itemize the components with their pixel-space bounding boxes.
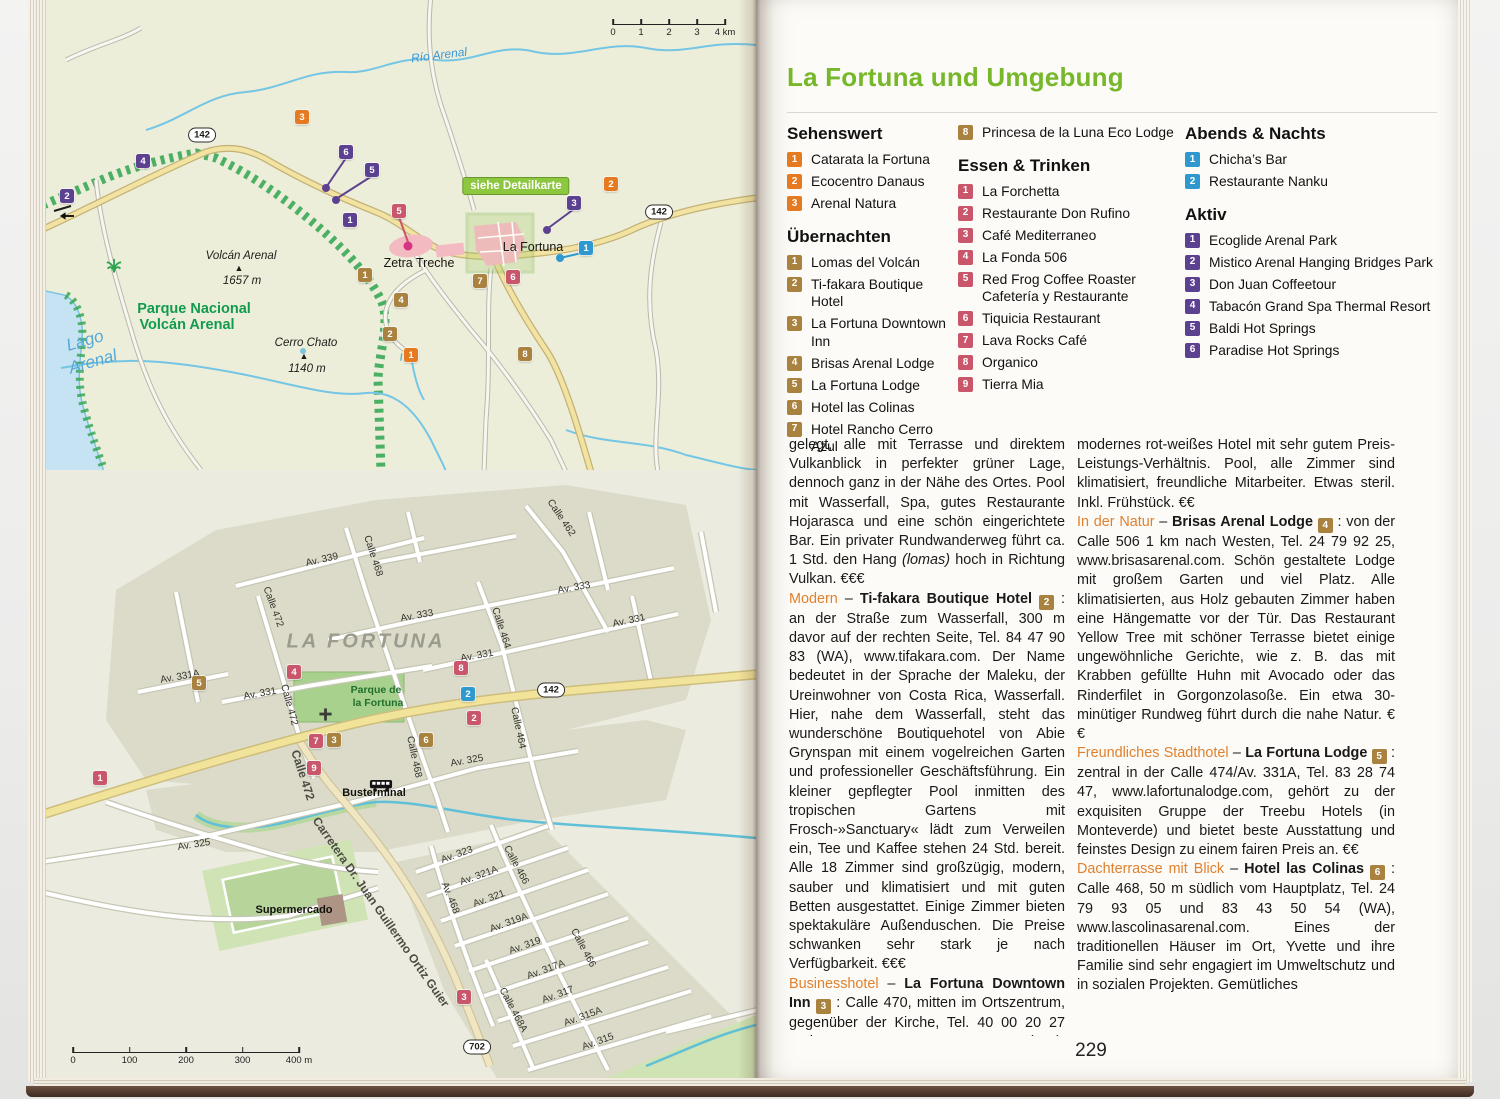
legend-item-label: Restaurante Don Rufino <box>982 205 1185 223</box>
map-label: Río Arenal <box>410 45 468 66</box>
map-label: ▲ <box>235 263 244 273</box>
legend-number-badge: 3 <box>787 196 802 211</box>
legend-item-label: Café Mediterraneo <box>982 227 1185 245</box>
map-label: Av. 323 <box>440 844 475 866</box>
legend-number-badge: 4 <box>1185 299 1200 314</box>
right-page-text: La Fortuna und Umgebung Sehenswert1Catar… <box>756 0 1458 1078</box>
legend-item: 7Lava Rocks Café <box>958 332 1185 350</box>
legend-item-label: Restaurante Nanku <box>1209 173 1447 191</box>
map-label: Calle 464 <box>508 706 528 750</box>
book-cover-edge <box>26 1086 1474 1097</box>
map-label: la Fortuna <box>353 697 404 709</box>
map-marker-lodging-6: 6 <box>419 733 433 747</box>
map-marker-food-2: 2 <box>467 711 481 725</box>
scale-tick-label: 100 <box>122 1055 138 1066</box>
legend-item-label: Mistico Arenal Hanging Bridges Park <box>1209 254 1447 272</box>
legend-item-label: Ecoglide Arenal Park <box>1209 232 1447 250</box>
map-label: Calle 464 <box>489 606 513 650</box>
legend-item-label: Hotel las Colinas <box>811 399 958 417</box>
map-label: Av. 319A <box>488 911 529 935</box>
map-label: Av. 321A <box>458 864 499 888</box>
map-label: Zetra Treche <box>384 256 455 270</box>
legend-item-label: Don Juan Coffeetour <box>1209 276 1447 294</box>
map-marker-night-1: 1 <box>579 241 593 255</box>
map-label: Parque Nacional <box>137 301 251 317</box>
map-label: 1657 m <box>223 275 261 287</box>
map-label: Av. 319 <box>508 935 543 957</box>
legend-item: 5Red Frog Coffee Roaster Cafetería y Res… <box>958 271 1185 306</box>
legend-column-1: Sehenswert1Catarata la Fortuna2Ecocentro… <box>787 120 958 460</box>
legend-item: 2Restaurante Nanku <box>1185 173 1447 191</box>
inline-number-badge: 5 <box>1372 749 1387 764</box>
legend-item: 9Tierra Mia <box>958 376 1185 394</box>
map-marker-lodging-1: 1 <box>358 268 372 282</box>
map-marker-sight-1: 1 <box>404 348 418 362</box>
map-label: Volcán Arenal <box>139 317 234 333</box>
title-rule <box>787 112 1437 113</box>
legend-section-title: Sehenswert <box>787 124 958 144</box>
scale-tick-label: 0 <box>70 1055 75 1066</box>
map-label: Parque de <box>351 684 402 696</box>
book-spread-photo: Río Arenal142142siehe DetailkarteLa Fort… <box>0 0 1500 1099</box>
map-label: Cerro Chato <box>275 337 338 349</box>
legend-number-badge: 5 <box>1185 321 1200 336</box>
scale-tick-label: 2 <box>666 27 671 38</box>
map-marker-active-3: 3 <box>567 196 581 210</box>
legend-item: 4Tabacón Grand Spa Thermal Resort <box>1185 298 1447 316</box>
legend-number-badge: 2 <box>958 206 973 221</box>
legend-item: 1La Forchetta <box>958 183 1185 201</box>
map-label: Av. 315 <box>581 1031 616 1053</box>
map-label: Calle 466 <box>568 927 598 969</box>
map-label: Av. 321 <box>472 888 507 910</box>
page-stack-right-edge <box>1458 0 1472 1082</box>
map-label: Av. 333 <box>557 580 591 597</box>
legend-item: 4La Fonda 506 <box>958 249 1185 267</box>
article-column-1: gelegt, alle mit Terrasse und direktem V… <box>789 436 1065 1036</box>
legend-item-label: Arenal Natura <box>811 195 958 213</box>
map-marker-lodging-8: 8 <box>518 347 532 361</box>
map-marker-active-1: 1 <box>343 213 357 227</box>
map-label: Av. 339 <box>305 551 340 569</box>
map-label: 142 <box>188 128 216 143</box>
legend-item-label: Ti-fakara Boutique Hotel <box>811 276 958 311</box>
map-label: Av. 325 <box>450 753 484 770</box>
legend-section-title: Übernachten <box>787 227 958 247</box>
legend-number-badge: 1 <box>1185 152 1200 167</box>
legend-item: 5La Fortuna Lodge <box>787 377 958 395</box>
map-label: ▲ <box>300 351 309 361</box>
map-label: Calle 472 <box>278 683 300 727</box>
scale-tick-label: 0 <box>610 27 615 38</box>
legend-number-badge: 9 <box>958 377 973 392</box>
map-label: Av. 333 <box>400 608 434 625</box>
inline-number-badge: 3 <box>816 999 831 1014</box>
paragraph: Freundliches Stadthotel – La Fortuna Lod… <box>1077 744 1395 860</box>
legend-item-label: La Fortuna Lodge <box>811 377 958 395</box>
map-annotations: Río Arenal142142siehe DetailkarteLa Fort… <box>46 0 756 1078</box>
legend-item: 6Paradise Hot Springs <box>1185 342 1447 360</box>
legend-number-badge: 1 <box>958 184 973 199</box>
legend-item: 4Brisas Arenal Lodge <box>787 355 958 373</box>
map-label: Calle 468A <box>497 986 530 1034</box>
legend-item: 3Arenal Natura <box>787 195 958 213</box>
map-label: 142 <box>537 683 565 698</box>
map-label: Av. 325 <box>177 837 211 853</box>
legend-item: 2Restaurante Don Rufino <box>958 205 1185 223</box>
map-marker-food-5: 5 <box>392 204 406 218</box>
legend-number-badge: 1 <box>787 255 802 270</box>
map-label: Av. 317A <box>525 958 566 982</box>
overview-map-scalebar: 01234 km <box>613 16 725 42</box>
map-label: siehe Detailkarte <box>462 177 569 195</box>
legend-item-label: Chicha’s Bar <box>1209 151 1447 169</box>
legend-number-badge: 2 <box>1185 255 1200 270</box>
legend-item-label: La Fortuna Downtown Inn <box>811 315 958 350</box>
legend-number-badge: 2 <box>787 277 802 292</box>
legend-item: 8Princesa de la Luna Eco Lodge <box>958 124 1185 142</box>
map-marker-lodging-2: 2 <box>383 327 397 341</box>
map-label: 142 <box>645 205 673 220</box>
map-marker-lodging-4: 4 <box>394 293 408 307</box>
map-label: Calle 462 <box>545 497 578 538</box>
map-marker-lodging-5: 5 <box>192 676 206 690</box>
legend-item-label: Tiquicia Restaurant <box>982 310 1185 328</box>
legend-number-badge: 1 <box>1185 233 1200 248</box>
legend-item-label: Red Frog Coffee Roaster Cafetería y Rest… <box>982 271 1185 306</box>
legend-number-badge: 4 <box>958 250 973 265</box>
inline-number-badge: 6 <box>1370 865 1385 880</box>
scale-tick-label: 200 <box>178 1055 194 1066</box>
legend-item: 1Lomas del Volcán <box>787 254 958 272</box>
legend-item-label: Organico <box>982 354 1185 372</box>
paragraph: Dachterrasse mit Blick – Hotel las Colin… <box>1077 860 1395 995</box>
legend-item: 2Ecocentro Danaus <box>787 173 958 191</box>
map-marker-active-6: 6 <box>339 145 353 159</box>
map-marker-night-2: 2 <box>461 687 475 701</box>
legend-number-badge: 1 <box>787 152 802 167</box>
legend-item: 3Café Mediterraneo <box>958 227 1185 245</box>
inline-number-badge: 4 <box>1318 518 1333 533</box>
scale-tick-label: 300 <box>235 1055 251 1066</box>
legend-item: 8Organico <box>958 354 1185 372</box>
map-label: Supermercado <box>255 904 332 916</box>
map-label: LA FORTUNA <box>287 631 446 654</box>
legend-number-badge: 7 <box>787 422 802 437</box>
legend-section-title: Essen & Trinken <box>958 156 1185 176</box>
scale-tick-label: 1 <box>638 27 643 38</box>
paragraph: gelegt, alle mit Terrasse und direktem V… <box>789 436 1065 590</box>
map-marker-food-6: 6 <box>506 270 520 284</box>
legend-item: 1Ecoglide Arenal Park <box>1185 232 1447 250</box>
map-label: Calle 468 <box>361 534 385 578</box>
map-label: Av. 315A <box>562 1005 603 1029</box>
legend-number-badge: 4 <box>787 356 802 371</box>
legend-item-label: La Forchetta <box>982 183 1185 201</box>
left-page-maps: Río Arenal142142siehe DetailkarteLa Fort… <box>46 0 756 1078</box>
paragraph: Modern – Ti-fakara Boutique Hotel 2 : an… <box>789 590 1065 975</box>
legend-item-label: Tabacón Grand Spa Thermal Resort <box>1209 298 1447 316</box>
paragraph: In der Natur – Brisas Arenal Lodge 4 : v… <box>1077 513 1395 744</box>
legend-number-badge: 7 <box>958 333 973 348</box>
map-marker-food-3: 3 <box>457 990 471 1004</box>
map-marker-active-2: 2 <box>60 189 74 203</box>
legend: Sehenswert1Catarata la Fortuna2Ecocentro… <box>787 120 1447 460</box>
map-label: 1140 m <box>288 363 326 375</box>
legend-number-badge: 8 <box>958 355 973 370</box>
map-label: Av. 331 <box>243 686 277 703</box>
page-number: 229 <box>787 1040 1395 1062</box>
legend-column-2: 8Princesa de la Luna Eco LodgeEssen & Tr… <box>958 120 1185 460</box>
paragraph: modernes rot-weißes Hotel mit sehr gutem… <box>1077 436 1395 513</box>
map-marker-lodging-7: 7 <box>473 274 487 288</box>
legend-item-label: Tierra Mia <box>982 376 1185 394</box>
legend-number-badge: 5 <box>958 272 973 287</box>
legend-item: 3La Fortuna Downtown Inn <box>787 315 958 350</box>
scale-tick-label: 400 m <box>286 1055 312 1066</box>
map-marker-food-7: 7 <box>309 734 323 748</box>
article-column-2: modernes rot-weißes Hotel mit sehr gutem… <box>1077 436 1395 1036</box>
legend-item: 1Chicha’s Bar <box>1185 151 1447 169</box>
map-marker-food-8: 8 <box>454 661 468 675</box>
legend-section-title: Aktiv <box>1185 205 1447 225</box>
map-label: La Fortuna <box>503 240 563 254</box>
legend-item-label: Paradise Hot Springs <box>1209 342 1447 360</box>
legend-item-label: La Fonda 506 <box>982 249 1185 267</box>
map-label: 702 <box>463 1040 491 1055</box>
legend-item: 2Mistico Arenal Hanging Bridges Park <box>1185 254 1447 272</box>
scale-tick-label: 3 <box>694 27 699 38</box>
legend-number-badge: 6 <box>958 311 973 326</box>
legend-number-badge: 3 <box>787 316 802 331</box>
page-stack-left-edge <box>28 0 46 1082</box>
detail-map-scalebar: 0100200300400 m <box>73 1044 299 1070</box>
legend-item-label: Catarata la Fortuna <box>811 151 958 169</box>
map-label: Av. 468 <box>439 881 462 916</box>
map-marker-food-9: 9 <box>307 761 321 775</box>
legend-item: 6Hotel las Colinas <box>787 399 958 417</box>
legend-item-label: Baldi Hot Springs <box>1209 320 1447 338</box>
legend-item-label: Lomas del Volcán <box>811 254 958 272</box>
legend-item: 3Don Juan Coffeetour <box>1185 276 1447 294</box>
legend-item-label: Brisas Arenal Lodge <box>811 355 958 373</box>
paragraph: Businesshotel – La Fortuna Downtown Inn … <box>789 975 1065 1036</box>
legend-item: 5Baldi Hot Springs <box>1185 320 1447 338</box>
map-label: Volcán Arenal <box>206 250 277 262</box>
legend-item-label: Ecocentro Danaus <box>811 173 958 191</box>
legend-item-label: Lava Rocks Café <box>982 332 1185 350</box>
map-marker-sight-3: 3 <box>295 110 309 124</box>
map-label: Calle 472 <box>288 748 317 802</box>
map-label: Calle 466 <box>501 844 531 886</box>
legend-number-badge: 5 <box>787 378 802 393</box>
map-label: Av. 317 <box>541 984 576 1006</box>
map-marker-food-4: 4 <box>287 665 301 679</box>
legend-number-badge: 3 <box>958 228 973 243</box>
legend-number-badge: 8 <box>958 125 973 140</box>
map-marker-food-1: 1 <box>93 771 107 785</box>
legend-number-badge: 2 <box>1185 174 1200 189</box>
legend-number-badge: 6 <box>787 400 802 415</box>
map-marker-active-4: 4 <box>136 154 150 168</box>
legend-item: 6Tiquicia Restaurant <box>958 310 1185 328</box>
legend-item-label: Princesa de la Luna Eco Lodge <box>982 124 1185 142</box>
legend-number-badge: 6 <box>1185 343 1200 358</box>
inline-number-badge: 2 <box>1039 595 1054 610</box>
legend-number-badge: 2 <box>787 174 802 189</box>
legend-item: 2Ti-fakara Boutique Hotel <box>787 276 958 311</box>
legend-number-badge: 3 <box>1185 277 1200 292</box>
legend-item: 1Catarata la Fortuna <box>787 151 958 169</box>
map-marker-active-5: 5 <box>365 163 379 177</box>
map-label: Av. 331 <box>612 612 647 630</box>
legend-section-title: Abends & Nachts <box>1185 124 1447 144</box>
map-marker-lodging-3: 3 <box>327 733 341 747</box>
scale-tick-label: 4 km <box>715 27 736 38</box>
map-label: Calle 472 <box>261 585 286 628</box>
map-marker-sight-2: 2 <box>604 177 618 191</box>
legend-column-3: Abends & Nachts1Chicha’s Bar2Restaurante… <box>1185 120 1447 460</box>
page-title: La Fortuna und Umgebung <box>787 62 1124 93</box>
